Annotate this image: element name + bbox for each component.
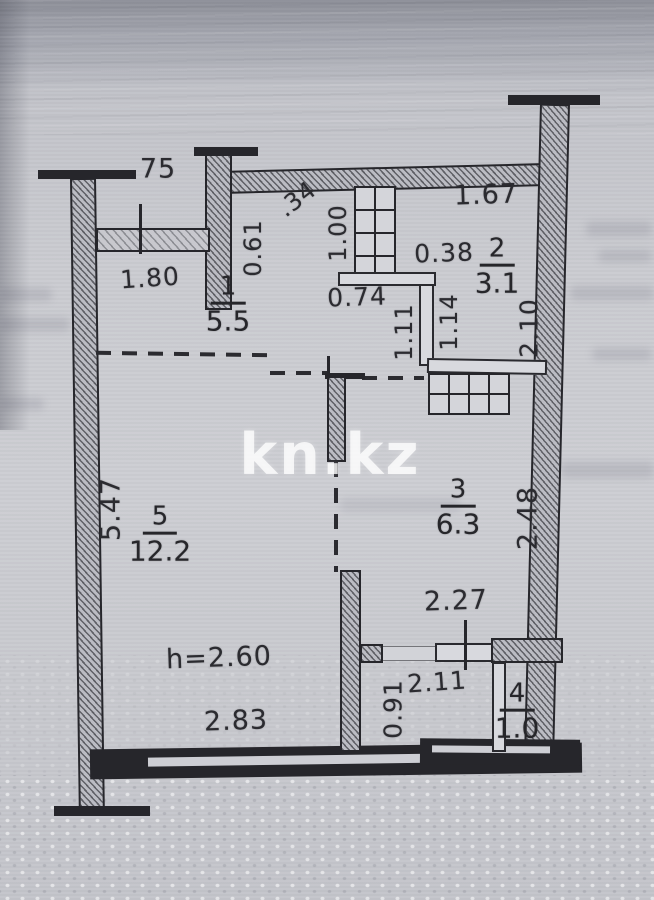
ceiling-height-label: h=2.60 [166,641,273,676]
room-area: 3.1 [475,269,520,298]
kn-kz-watermark: kn.kz [239,422,420,488]
dim-duct: 1.00 [324,204,352,261]
dim-bathroom-right: 2.10 [515,298,544,358]
bleed-through-smudge [0,288,52,301]
wall-kitchen-bottom-hatched [491,638,563,663]
wall-lobby-vertical [419,284,434,366]
room-number: 4 [500,681,535,712]
room-label-living: 5 12.2 [129,504,191,567]
room-label-hall: 1 5.5 [206,274,251,337]
room-number: 2 [480,236,515,267]
room-label-kitchen: 3 6.3 [436,477,481,540]
floor-plan-photo: 1 5.5 2 3.1 3 6.3 4 1.0 5 12.2 75 1.80 0… [0,0,654,900]
door-opening-kitchen [383,646,435,661]
room-label-bathroom: 2 3.1 [475,236,520,299]
room-number: 3 [441,477,476,508]
partition-stub-lower [340,570,361,752]
bleed-through-smudge [560,462,654,478]
zone-boundary-dashed [362,376,424,380]
wall-kitchen-bottom-pier [360,644,383,663]
dimension-tick-balcony [139,204,142,254]
wall-storage-inner-line [500,661,558,663]
dim-lobby-width-2: 1.14 [435,293,463,350]
room-area: 6.3 [436,510,481,539]
bleed-through-smudge [592,348,652,360]
room-number: 5 [143,504,178,535]
room-number: 1 [211,274,246,305]
wall-left-top-cap [38,170,136,179]
dim-corridor-width: 0.91 [379,679,408,739]
dim-lobby-width-1: 1.11 [390,303,418,360]
dim-balcony-length: 1.80 [119,261,181,294]
room-area: 5.5 [206,307,251,336]
zone-boundary-dashed [270,371,330,375]
ventilation-shaft-grid [354,186,396,282]
dim-lobby-door: 0.74 [327,281,388,312]
room-label-storage: 4 1.0 [495,681,540,744]
dim-kitchen-width: 2.27 [423,584,488,617]
bleed-through-smudge [0,318,70,331]
wall-right-top-cap [508,95,600,105]
bleed-through-smudge [570,286,654,300]
bleed-through-smudge [0,398,44,410]
dim-balcony-width: 75 [140,154,176,185]
balcony-parapet [96,228,210,252]
bleed-through-smudge [586,222,652,236]
dimension-tick-kitchen [464,620,467,670]
wall-entry-top-cap [194,147,258,156]
dim-bathroom-offset: 0.38 [414,237,475,268]
dim-living-width: 2.83 [203,704,268,737]
dim-living-depth: 5.47 [96,477,127,541]
room-area: 1.0 [495,714,540,743]
wall-left-bottom-cap [54,806,150,816]
dim-kitchen-right: 2.48 [513,486,544,550]
dim-bathroom-width: 1.67 [453,178,518,211]
ventilation-block-grid [428,373,510,415]
dim-corridor-length: 2.11 [406,665,468,698]
dim-hall-wall: 0.61 [239,219,267,276]
bleed-through-smudge [598,250,652,262]
room-area: 12.2 [129,537,191,566]
